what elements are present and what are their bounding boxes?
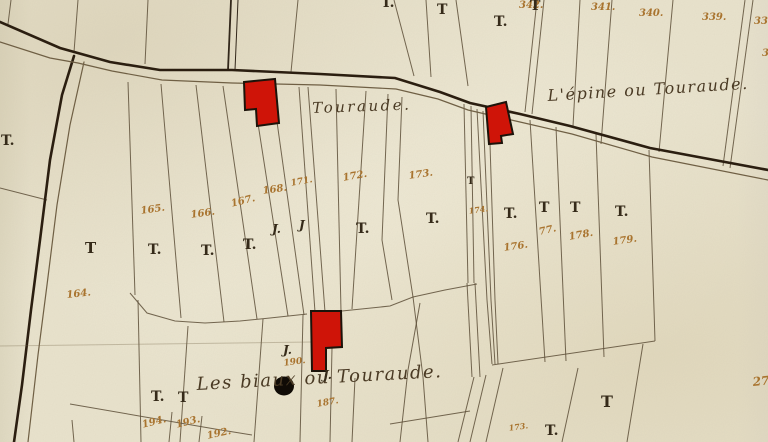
t-cultivation-mark: T.	[426, 211, 440, 227]
t-cultivation-mark: T.	[201, 243, 215, 259]
t-cultivation-mark: T	[178, 390, 188, 406]
t-cultivation-mark: T.	[615, 204, 629, 220]
t-cultivation-mark: T	[601, 392, 613, 411]
t-cultivation-mark: T	[437, 2, 447, 18]
t-cultivation-mark: T	[530, 0, 540, 14]
t-cultivation-mark: T.	[148, 242, 162, 258]
j-cultivation-mark: J.	[323, 368, 332, 382]
t-cultivation-mark: T	[85, 239, 96, 257]
t-cultivation-mark: T.	[494, 14, 508, 30]
t-cultivation-mark: T	[570, 200, 580, 216]
historical-cadastre-map: Touraude.L'épine ou Touraude.Les biaux o…	[0, 0, 768, 442]
j-cultivation-mark: J	[299, 218, 305, 232]
t-cultivation-mark: T	[539, 200, 549, 216]
t-cultivation-mark: T.	[356, 221, 370, 237]
place-name-label: Touraude.	[312, 96, 412, 117]
j-cultivation-mark: J.	[272, 222, 281, 236]
t-cultivation-mark: T.	[151, 389, 165, 405]
parcel-number: 340.	[639, 8, 663, 19]
t-cultivation-mark: T.	[381, 0, 395, 11]
parcel-number: 341.	[591, 2, 615, 13]
parcel-number: 3	[762, 48, 768, 59]
t-cultivation-mark: T.	[243, 237, 257, 253]
t-cultivation-mark: T	[467, 176, 474, 187]
j-cultivation-mark: J.	[283, 343, 292, 357]
t-cultivation-mark: T.	[1, 133, 15, 149]
parcel-number: 27	[752, 373, 768, 389]
t-cultivation-mark: T.	[545, 423, 559, 439]
parcel-number: 339.	[702, 12, 726, 23]
parcel-number: 338.	[754, 16, 768, 27]
t-cultivation-mark: T.	[504, 206, 518, 222]
